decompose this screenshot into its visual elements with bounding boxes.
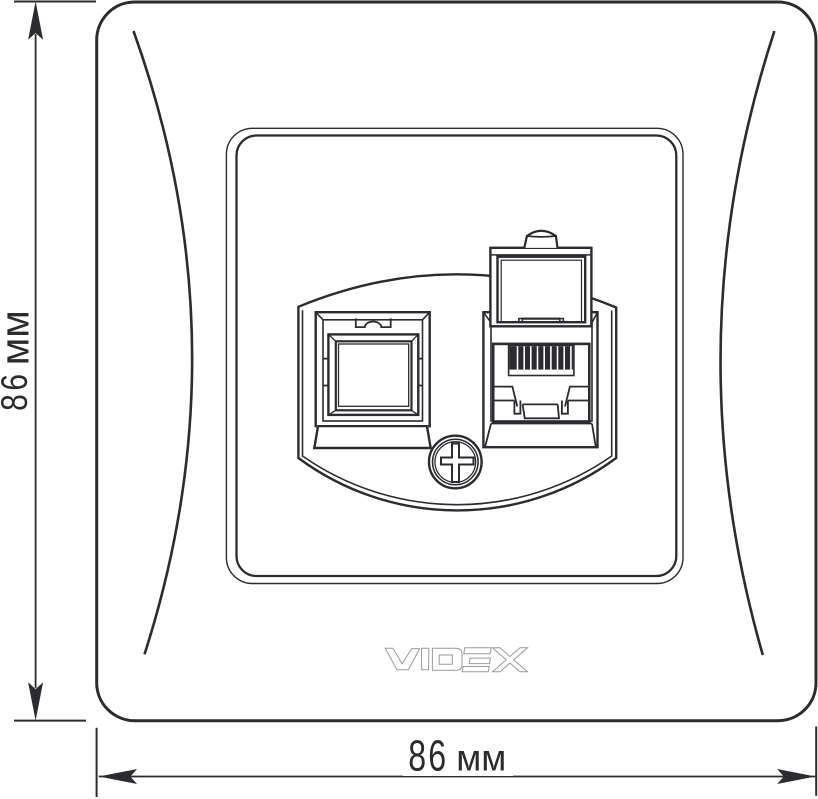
svg-text:мм: мм <box>456 737 506 779</box>
svg-text:86: 86 <box>408 732 448 781</box>
svg-text:86: 86 <box>0 370 36 411</box>
svg-text:мм: мм <box>0 310 38 365</box>
